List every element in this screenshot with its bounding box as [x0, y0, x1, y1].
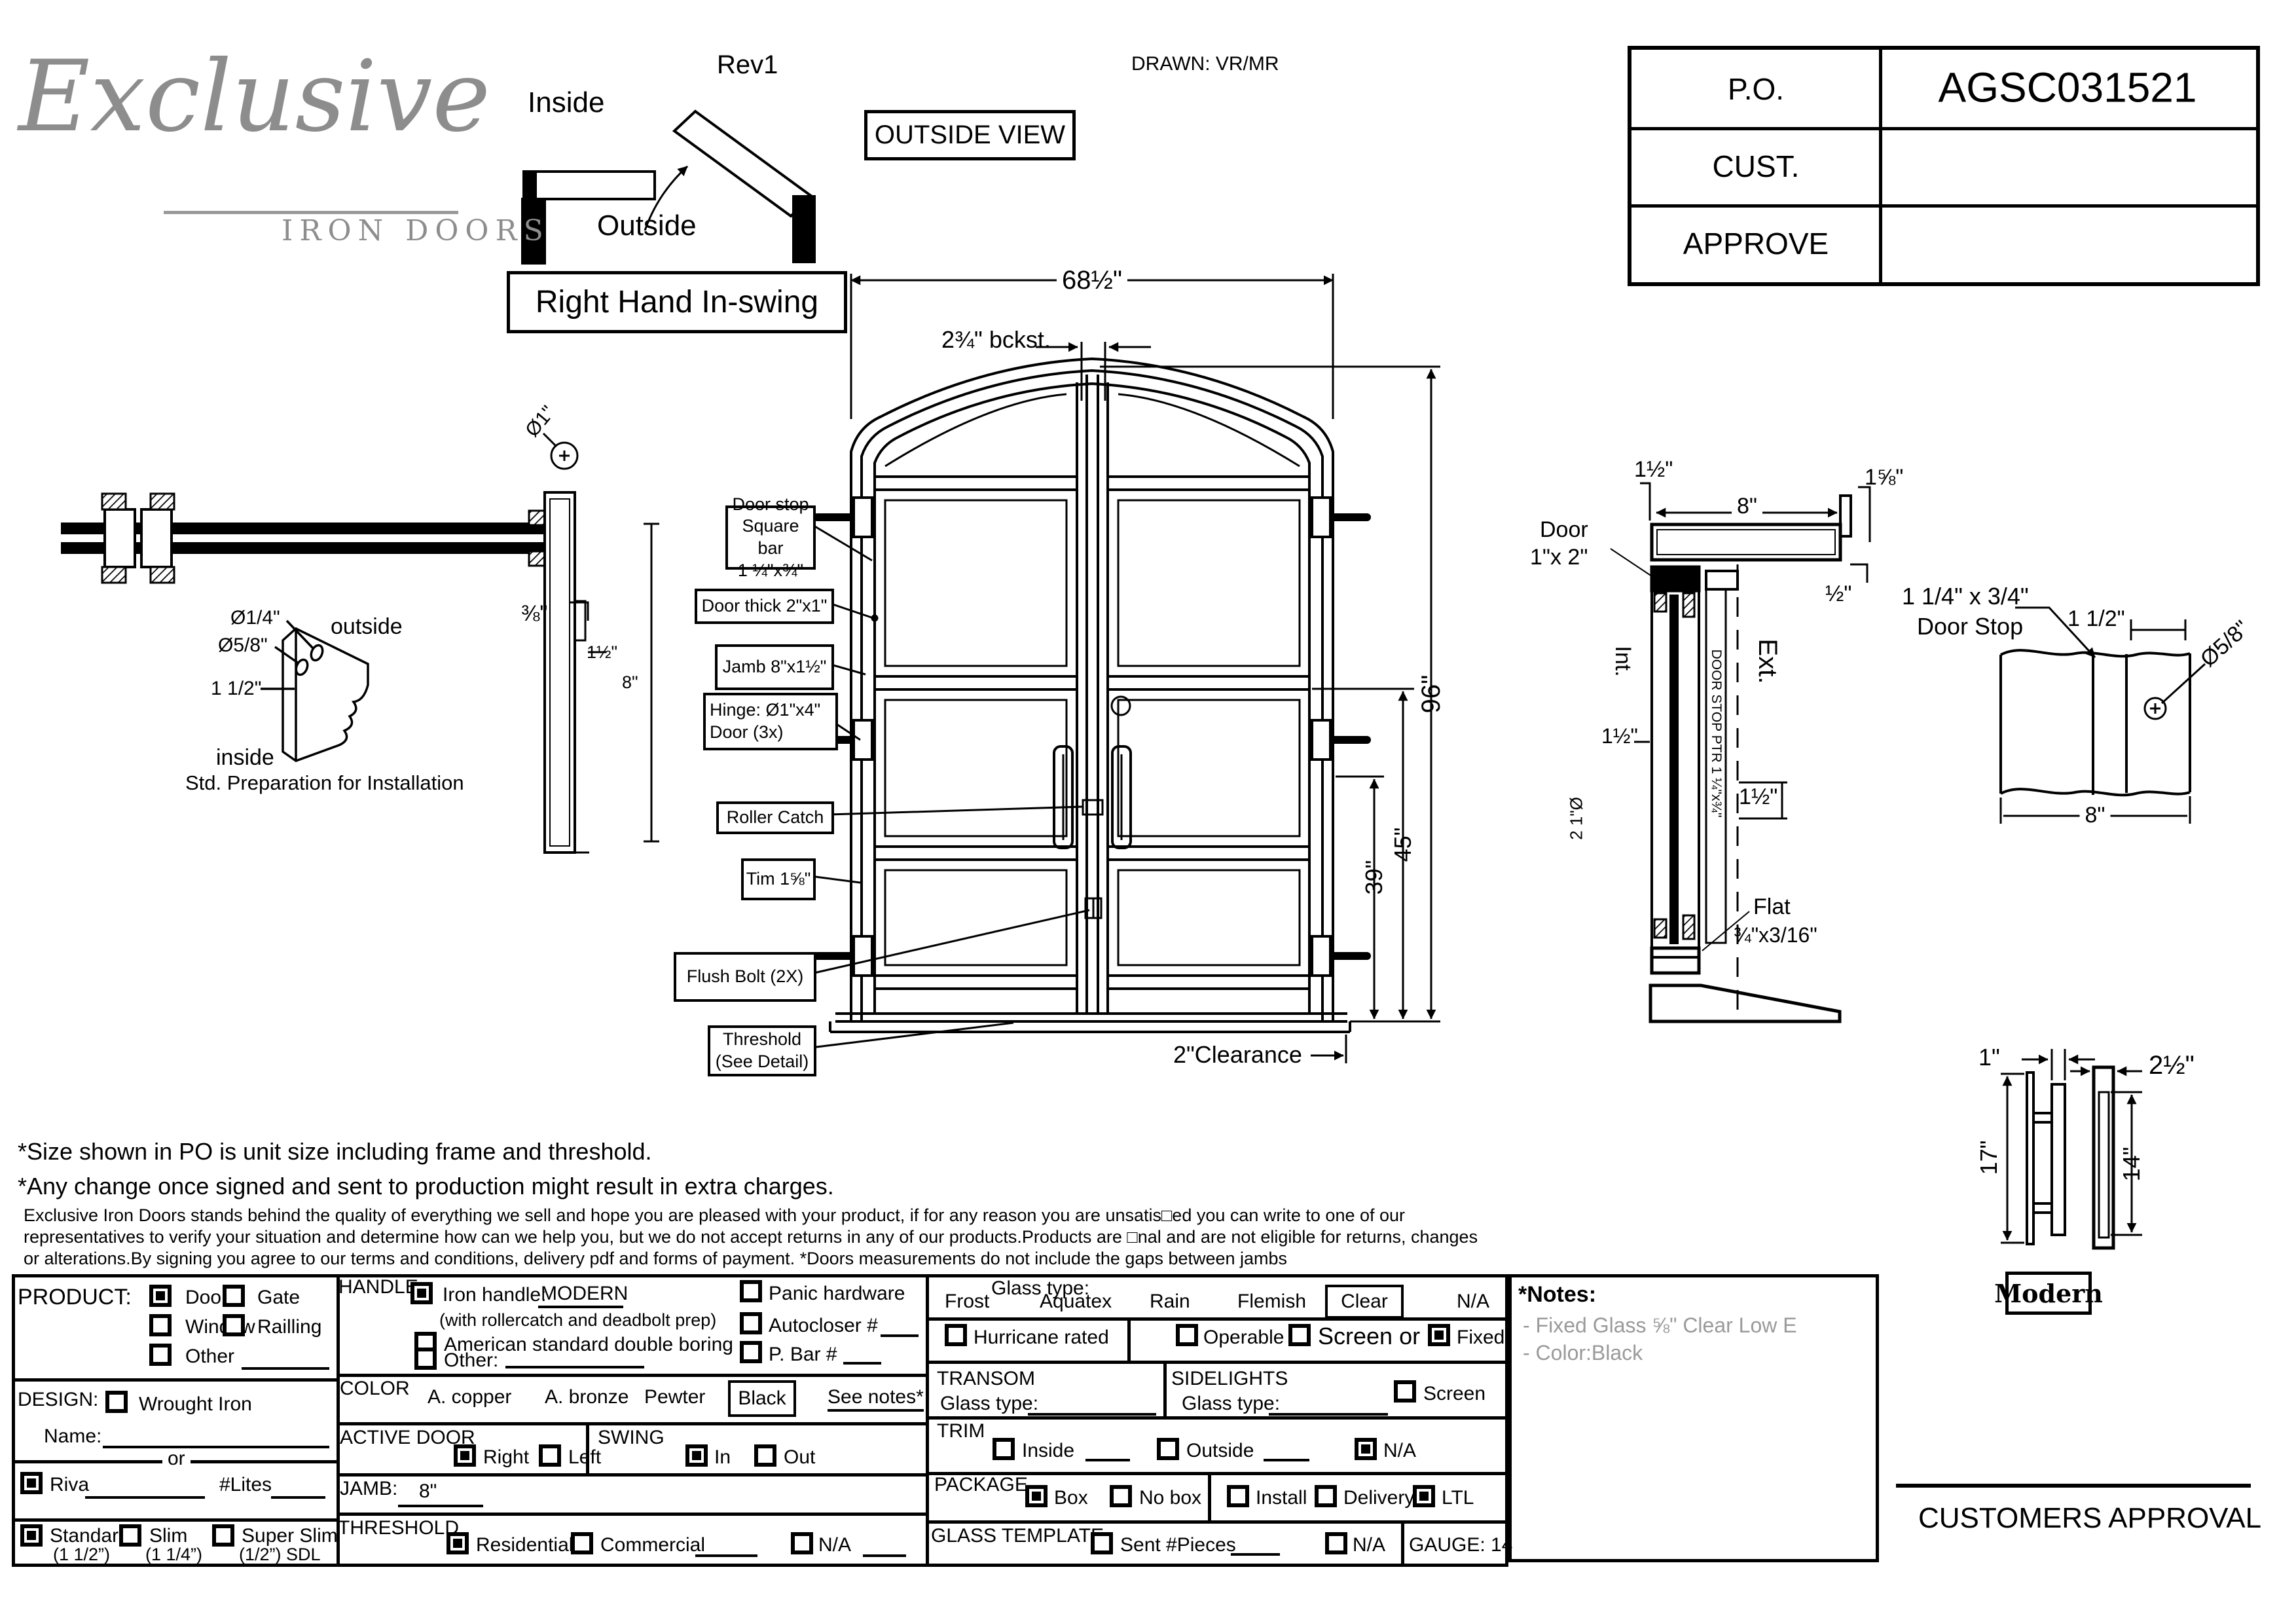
design-standard-label: Standard	[50, 1526, 130, 1547]
dim-39: 39"	[1362, 860, 1387, 895]
package-nobox-label: No box	[1139, 1488, 1201, 1509]
handle-name-box: Modern	[2005, 1272, 2092, 1315]
fine-print-3: or alterations.By signing you agree to o…	[24, 1249, 1287, 1268]
threshold-residential-checkbox[interactable]	[446, 1532, 469, 1554]
design-standard-checkbox[interactable]	[20, 1524, 43, 1547]
handle-other-checkbox[interactable]	[414, 1348, 437, 1370]
package-box-label: Box	[1054, 1488, 1088, 1509]
handle-autocloser-checkbox[interactable]	[740, 1312, 762, 1334]
glass-na-option[interactable]: N/A	[1457, 1291, 1489, 1312]
prep-caption: Std. Preparation for Installation	[185, 773, 464, 794]
design-riva-input[interactable]	[85, 1496, 205, 1499]
callout-door-stop-line3: 1 ¼"x¾"	[738, 560, 803, 582]
transom-glass-label: Glass type:	[940, 1393, 1038, 1414]
swing-out-checkbox[interactable]	[754, 1444, 776, 1467]
threshold-na-label: N/A	[818, 1535, 851, 1556]
dim-clearance: 2"Clearance	[1173, 1042, 1302, 1067]
dim-width: 68½"	[1057, 266, 1127, 294]
outside-label: Outside	[597, 211, 697, 241]
wall-8-label: 8"	[622, 673, 638, 691]
glass-template-sent-input[interactable]	[1231, 1553, 1280, 1556]
active-right-label: Right	[483, 1447, 529, 1468]
logo-subtitle: IRON DOORS	[282, 216, 550, 246]
callout-flush-bolt-label: Flush Bolt (2X)	[687, 966, 804, 988]
package-install-label: Install	[1256, 1488, 1307, 1509]
jamb-12: ½"	[1825, 583, 1851, 606]
jamb-flat-size: ¾"x3/16"	[1734, 925, 1817, 947]
handle-autocloser-label: Autocloser #	[769, 1315, 878, 1336]
glass-clear-option[interactable]: Clear	[1325, 1285, 1404, 1319]
handle-212-label: 2½"	[2149, 1052, 2195, 1079]
jamb-ext-label: Ext.	[1754, 639, 1781, 684]
handle-pbar-label: P. Bar #	[769, 1344, 837, 1365]
prep-112-label: 1 1/2"	[211, 678, 261, 699]
callout-jamb-label: Jamb 8"x1½"	[723, 656, 827, 678]
glass-hurricane-checkbox[interactable]	[945, 1324, 967, 1346]
package-delivery-checkbox[interactable]	[1315, 1485, 1337, 1507]
product-railling-checkbox[interactable]	[223, 1314, 245, 1336]
callout-door-thick-label: Door thick 2"x1"	[702, 595, 828, 617]
color-black-option[interactable]: Black	[728, 1380, 796, 1417]
product-door-label: Door	[185, 1287, 228, 1308]
design-lites-input[interactable]	[271, 1496, 325, 1499]
trim-label: TRIM	[937, 1421, 985, 1442]
handle-autocloser-input[interactable]	[881, 1334, 919, 1337]
doorstop-112-label: 1 1/2"	[2068, 608, 2125, 631]
callout-door-stop: Door stop Square bar 1 ¼"x¾"	[725, 505, 816, 570]
callout-hinge: Hinge: Ø1"x4" Door (3x)	[703, 693, 838, 750]
prep-dia14-label: Ø1/4"	[230, 608, 280, 629]
glass-template-sent-label: Sent #Pieces	[1120, 1535, 1236, 1556]
glass-hurricane-label: Hurricane rated	[974, 1327, 1109, 1348]
cust-label: CUST.	[1713, 151, 1800, 182]
swing-title-box: Right Hand In-swing	[507, 271, 847, 333]
doorstop-8-label: 8"	[2080, 804, 2111, 828]
callout-door-stop-line2: Square bar	[728, 515, 813, 560]
handle-pbar-checkbox[interactable]	[740, 1341, 762, 1363]
jamb-door-line1: Door	[1540, 519, 1588, 542]
outside-view-label: OUTSIDE VIEW	[875, 120, 1065, 150]
sidelights-label: SIDELIGHTS	[1171, 1368, 1288, 1389]
glass-operable-checkbox[interactable]	[1176, 1324, 1198, 1346]
approval-signature-line[interactable]	[1896, 1484, 2251, 1488]
glass-operable-label: Operable	[1203, 1327, 1284, 1348]
prep-dia58-label: Ø5/8"	[218, 635, 268, 656]
active-left-checkbox[interactable]	[539, 1444, 561, 1467]
glass-clear-label: Clear	[1341, 1291, 1388, 1313]
jamb-8: 8"	[1732, 495, 1762, 519]
trim-outside-input[interactable]	[1264, 1459, 1309, 1461]
product-door-checkbox[interactable]	[149, 1285, 172, 1307]
doorstop-dia58-label: Ø5/8"	[2196, 617, 2254, 672]
package-label: PACKAGE	[934, 1475, 1028, 1495]
jamb-form-input[interactable]	[398, 1505, 483, 1507]
dim-height: 96"	[1417, 675, 1445, 714]
trim-na-label: N/A	[1383, 1440, 1416, 1461]
design-label: DESIGN:	[18, 1389, 98, 1410]
handle-other-input[interactable]	[505, 1366, 644, 1368]
wall-112-label: 1½"	[587, 643, 617, 661]
product-gate-label: Gate	[257, 1287, 300, 1308]
design-riva-checkbox[interactable]	[20, 1472, 43, 1494]
color-pewter-option[interactable]: Pewter	[644, 1387, 705, 1408]
package-ltl-label: LTL	[1442, 1488, 1474, 1509]
jamb-158: 1⅝"	[1865, 466, 1903, 490]
trim-outside-label: Outside	[1186, 1440, 1254, 1461]
trim-outside-checkbox[interactable]	[1157, 1438, 1179, 1460]
threshold-label: THRESHOLD	[338, 1518, 459, 1539]
po-table: P.O. AGSC031521 CUST. APPROVE	[1628, 46, 2260, 286]
gauge-label: GAUGE: 14	[1409, 1535, 1512, 1556]
trim-inside-checkbox[interactable]	[993, 1438, 1015, 1460]
threshold-commercial-input[interactable]	[695, 1554, 757, 1557]
jamb-form-value[interactable]: 8"	[419, 1481, 437, 1502]
jamb-tube-label: 2 1"Ø	[1567, 797, 1585, 840]
handle-panic-label: Panic hardware	[769, 1283, 905, 1304]
package-box-checkbox[interactable]	[1025, 1485, 1048, 1507]
po-label: P.O.	[1728, 73, 1784, 105]
revision-label: Rev1	[717, 51, 778, 79]
prep-outside-label: outside	[331, 615, 403, 639]
swing-in-checkbox[interactable]	[685, 1444, 708, 1467]
callout-trim-label: Tim 1⅝"	[746, 868, 811, 890]
outside-view-box: OUTSIDE VIEW	[864, 110, 1076, 160]
product-other-checkbox[interactable]	[149, 1344, 172, 1366]
note-changes: *Any change once signed and sent to prod…	[18, 1174, 834, 1199]
swing-label: SWING	[598, 1427, 665, 1448]
glass-template-label: GLASS TEMPLATE	[931, 1526, 1104, 1547]
handle-panic-checkbox[interactable]	[740, 1280, 762, 1302]
trim-na-checkbox[interactable]	[1355, 1438, 1377, 1460]
threshold-residential-label: Residential	[476, 1535, 573, 1556]
handle-iron-checkbox[interactable]	[410, 1282, 433, 1304]
color-label: COLOR	[340, 1378, 410, 1399]
transom-glass-input[interactable]	[1028, 1413, 1156, 1416]
design-or-label: or	[162, 1448, 191, 1469]
callout-flush-bolt: Flush Bolt (2X)	[674, 952, 816, 1002]
drawing-sheet: Exclusive IRON DOORS Rev1 Inside Outside…	[0, 0, 2296, 1614]
jamb-int-label: Int.	[1611, 646, 1634, 676]
glass-flemish-option[interactable]: Flemish	[1237, 1291, 1306, 1312]
product-other-input[interactable]	[242, 1367, 329, 1370]
jamb-112-right: 1½"	[1739, 786, 1777, 809]
design-slim-sub: (1 1/4”)	[145, 1545, 202, 1564]
design-slim-label: Slim	[149, 1526, 187, 1547]
handle-other-label: Other:	[444, 1350, 498, 1371]
callout-threshold-line2: (See Detail)	[716, 1051, 809, 1073]
handle-iron-input[interactable]	[538, 1306, 623, 1308]
dim-45: 45"	[1391, 828, 1415, 862]
swing-title-label: Right Hand In-swing	[536, 284, 818, 320]
glass-rain-option[interactable]: Rain	[1150, 1291, 1190, 1312]
po-value[interactable]: AGSC031521	[1939, 65, 2197, 109]
handle-iron-sub: (with rollercatch and deadbolt prep)	[439, 1311, 716, 1329]
threshold-commercial-label: Commercial	[600, 1535, 705, 1556]
design-superslim-checkbox[interactable]	[212, 1524, 234, 1547]
glass-fixed-label: Fixed	[1457, 1327, 1504, 1348]
callout-door-thick: Door thick 2"x1"	[695, 589, 834, 624]
color-see-notes[interactable]: See notes*	[828, 1387, 924, 1412]
jamb-form-label: JAMB:	[340, 1478, 397, 1499]
design-riva-label: Riva	[50, 1475, 89, 1495]
active-right-checkbox[interactable]	[454, 1444, 476, 1467]
color-bronze-option[interactable]: A. bronze	[545, 1387, 629, 1408]
sidelights-glass-label: Glass type:	[1182, 1393, 1280, 1414]
swing-out-label: Out	[784, 1447, 815, 1468]
callout-jamb: Jamb 8"x1½"	[715, 644, 834, 690]
glass-template-na-checkbox[interactable]	[1325, 1532, 1347, 1554]
callout-threshold-line1: Threshold	[723, 1029, 801, 1051]
handle-iron-value[interactable]: MODERN	[541, 1283, 628, 1304]
design-superslim-label: Super Slim	[242, 1526, 338, 1547]
design-superslim-sub: (1/2”) SDL	[239, 1545, 321, 1564]
side-notes-line1: - Fixed Glass ⅝" Clear Low E	[1523, 1315, 1797, 1337]
jamb-flat-label: Flat	[1753, 896, 1791, 919]
design-lites-label: #Lites	[219, 1475, 272, 1495]
product-label: PRODUCT:	[18, 1286, 132, 1310]
design-wrought-checkbox[interactable]	[105, 1391, 128, 1413]
jamb-112-mid: 1½"	[1601, 725, 1638, 748]
approval-label: CUSTOMERS APPROVAL	[1918, 1503, 2261, 1533]
handle-iron-label: Iron handle:	[443, 1285, 546, 1306]
approve-label: APPROVE	[1683, 228, 1829, 259]
glass-fixed-checkbox[interactable]	[1428, 1324, 1450, 1346]
active-left-label: Left	[568, 1447, 601, 1468]
handle-14-label: 14"	[2119, 1147, 2144, 1182]
jamb-112-top: 1½"	[1634, 458, 1673, 482]
wall-dia1-label: Ø1"	[522, 402, 559, 441]
design-name-label: Name:	[44, 1426, 101, 1447]
handle-name-label: Modern	[1994, 1279, 2103, 1308]
handle-17-label: 17"	[1977, 1141, 2001, 1175]
color-black-label: Black	[738, 1387, 786, 1410]
fine-print-1: Exclusive Iron Doors stands behind the q…	[24, 1206, 1405, 1224]
threshold-na-checkbox[interactable]	[791, 1532, 813, 1554]
swing-in-label: In	[714, 1447, 731, 1468]
package-install-checkbox[interactable]	[1227, 1485, 1249, 1507]
callout-trim: Tim 1⅝"	[741, 858, 816, 900]
doorstop-size-label: 1 1/4" x 3/4"	[1902, 584, 2029, 609]
product-other-label: Other	[185, 1346, 234, 1367]
callout-door-stop-line1: Door stop	[732, 494, 809, 516]
design-wrought-label: Wrought Iron	[139, 1394, 252, 1415]
drawn-by-label: DRAWN: VR/MR	[1131, 54, 1279, 75]
callout-hinge-line2: Door (3x)	[710, 722, 784, 744]
inside-label: Inside	[528, 88, 604, 118]
handle-label: HANDLE	[338, 1277, 418, 1298]
callout-roller-catch-label: Roller Catch	[727, 807, 824, 829]
threshold-na-input[interactable]	[863, 1554, 906, 1557]
design-slim-checkbox[interactable]	[119, 1524, 141, 1547]
handle-pbar-input[interactable]	[843, 1362, 881, 1365]
product-window-checkbox[interactable]	[149, 1314, 172, 1336]
note-size: *Size shown in PO is unit size including…	[18, 1139, 652, 1164]
glass-aquatex-option[interactable]: Aquatex	[1040, 1291, 1112, 1312]
glass-frost-option[interactable]: Frost	[945, 1291, 989, 1312]
callout-threshold: Threshold (See Detail)	[708, 1025, 816, 1076]
sidelights-screen-checkbox[interactable]	[1394, 1380, 1416, 1403]
product-railling-label: Railling	[257, 1317, 321, 1338]
logo-script: Exclusive	[18, 46, 490, 149]
threshold-commercial-checkbox[interactable]	[571, 1532, 593, 1554]
callout-roller-catch: Roller Catch	[716, 801, 834, 834]
trim-inside-input[interactable]	[1085, 1459, 1130, 1461]
jamb-doorstop-vertical-label: DOOR STOP PTR 1 ¼"x¾"	[1709, 650, 1723, 818]
glass-template-sent-checkbox[interactable]	[1091, 1532, 1113, 1554]
transom-label: TRANSOM	[937, 1368, 1035, 1389]
design-name-input[interactable]	[103, 1446, 329, 1448]
design-standard-sub: (1 1/2”)	[53, 1545, 110, 1564]
side-notes-title: *Notes:	[1518, 1283, 1596, 1307]
fine-print-2: representatives to verify your situation…	[24, 1228, 1478, 1246]
wall-38-label: ⅜"	[521, 602, 547, 626]
package-ltl-checkbox[interactable]	[1413, 1485, 1435, 1507]
sidelights-screen-label: Screen	[1423, 1384, 1485, 1404]
color-copper-option[interactable]: A. copper	[428, 1387, 511, 1408]
glass-template-na-label: N/A	[1353, 1535, 1385, 1556]
side-notes-line2: - Color:Black	[1523, 1342, 1643, 1365]
doorstop-name-label: Door Stop	[1917, 614, 2023, 639]
jamb-door-line2: 1"x 2"	[1530, 546, 1588, 570]
callout-hinge-line1: Hinge: Ø1"x4"	[710, 699, 820, 722]
sidelights-glass-input[interactable]	[1269, 1413, 1388, 1416]
dim-backset: 2¾" bckst.	[941, 327, 1051, 352]
glass-screen-checkbox[interactable]	[1288, 1324, 1311, 1346]
handle-1-label: 1"	[1978, 1045, 2000, 1070]
prep-inside-label: inside	[216, 746, 274, 770]
package-delivery-label: Delivery	[1343, 1488, 1414, 1509]
package-nobox-checkbox[interactable]	[1110, 1485, 1132, 1507]
trim-inside-label: Inside	[1022, 1440, 1074, 1461]
glass-screen-or-label: Screen or	[1318, 1324, 1420, 1349]
product-gate-checkbox[interactable]	[223, 1285, 245, 1307]
